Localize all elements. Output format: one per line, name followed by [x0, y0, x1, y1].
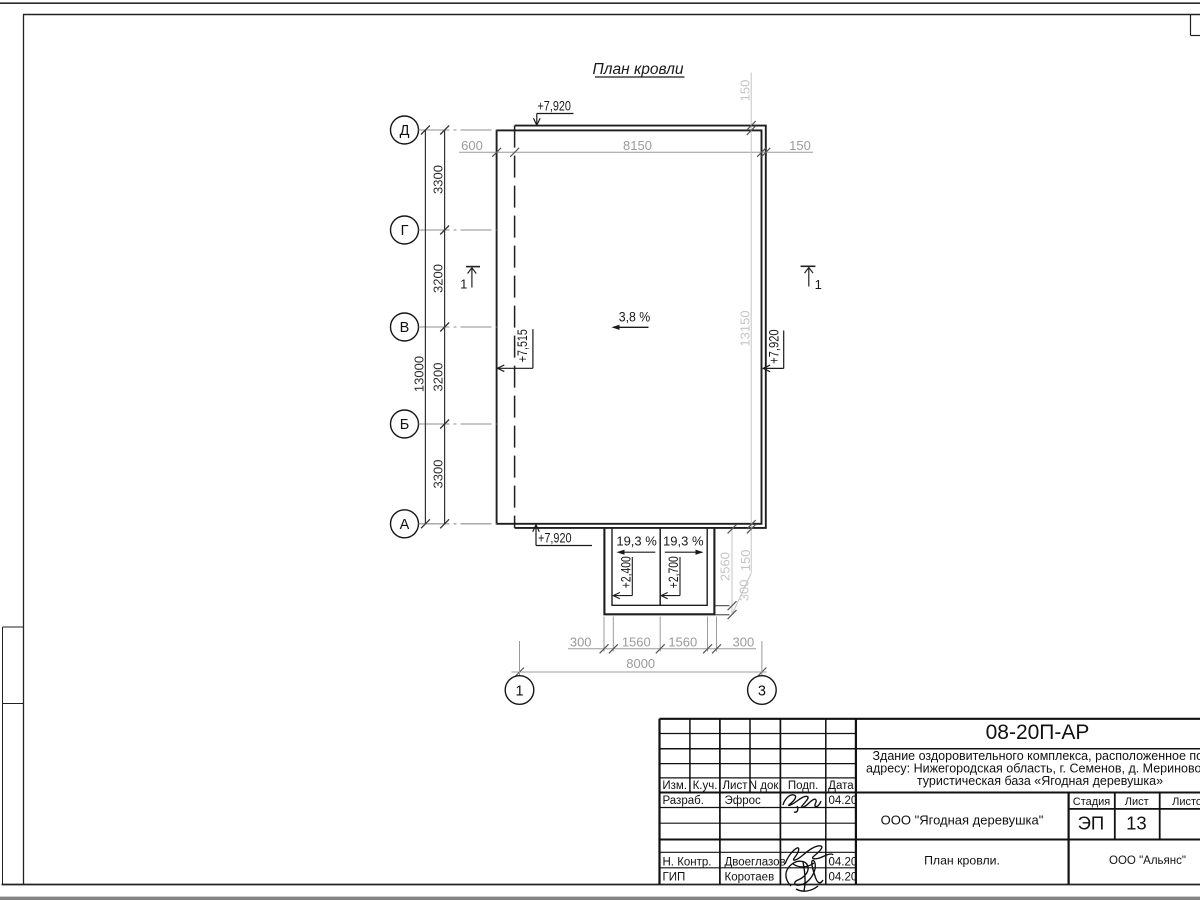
svg-text:300: 300 — [737, 580, 752, 602]
svg-text:Коротаев: Коротаев — [725, 872, 775, 884]
svg-text:3,8 %: 3,8 % — [619, 308, 651, 324]
svg-text:Н. Контр.: Н. Контр. — [663, 857, 712, 869]
svg-text:План кровли: План кровли — [593, 61, 684, 78]
svg-text:3300: 3300 — [430, 165, 445, 194]
svg-text:туристическая база «Ягодная де: туристическая база «Ягодная деревушка» — [917, 774, 1163, 788]
svg-text:04.20: 04.20 — [829, 795, 858, 807]
svg-text:04.20: 04.20 — [829, 872, 858, 884]
svg-text:1: 1 — [515, 683, 523, 699]
svg-text:+2,400: +2,400 — [618, 556, 633, 588]
svg-text:Стадия: Стадия — [1073, 796, 1111, 808]
svg-text:3300: 3300 — [430, 460, 445, 489]
svg-text:3200: 3200 — [430, 363, 445, 392]
svg-text:В: В — [400, 320, 410, 336]
svg-text:Дата: Дата — [828, 780, 854, 792]
svg-text:150: 150 — [738, 80, 753, 102]
svg-text:600: 600 — [461, 138, 483, 153]
svg-text:Эфрос: Эфрос — [725, 795, 762, 807]
svg-text:1: 1 — [815, 277, 822, 292]
svg-text:Листов: Листов — [1172, 796, 1200, 808]
svg-text:3200: 3200 — [430, 264, 445, 293]
svg-text:К.уч.: К.уч. — [693, 780, 718, 792]
svg-text:Изм.: Изм. — [662, 780, 687, 792]
svg-text:ГИП: ГИП — [663, 872, 686, 884]
svg-text:Лист: Лист — [1125, 796, 1149, 808]
svg-text:+7,920: +7,920 — [537, 98, 571, 114]
svg-text:150: 150 — [738, 550, 753, 572]
svg-text:+7,920: +7,920 — [765, 329, 781, 364]
svg-text:3: 3 — [758, 683, 766, 699]
svg-text:1: 1 — [460, 277, 467, 292]
svg-text:300: 300 — [570, 635, 592, 650]
svg-text:Б: Б — [400, 417, 410, 433]
svg-text:1560: 1560 — [622, 635, 651, 650]
svg-text:8000: 8000 — [626, 656, 655, 671]
svg-text:13000: 13000 — [411, 356, 426, 392]
svg-text:Д: Д — [400, 123, 410, 139]
svg-text:+2,700: +2,700 — [666, 556, 681, 588]
svg-text:19,3 %: 19,3 % — [663, 533, 704, 548]
svg-text:N док.: N док. — [749, 780, 782, 792]
svg-text:04.20: 04.20 — [829, 857, 858, 869]
svg-text:300: 300 — [733, 635, 755, 650]
svg-text:150: 150 — [789, 138, 811, 153]
svg-text:19,3 %: 19,3 % — [616, 533, 657, 548]
svg-text:08-20П-АР: 08-20П-АР — [986, 721, 1090, 744]
svg-text:Двоеглазов: Двоеглазов — [725, 857, 786, 869]
svg-text:1560: 1560 — [668, 635, 697, 650]
svg-text:Подп.: Подп. — [788, 780, 819, 792]
svg-text:ООО "Ягодная деревушка": ООО "Ягодная деревушка" — [881, 813, 1044, 828]
svg-text:2560: 2560 — [718, 552, 733, 581]
svg-text:+7,920: +7,920 — [538, 530, 572, 546]
svg-text:+7,515: +7,515 — [514, 329, 530, 362]
svg-text:ООО "Альянс": ООО "Альянс" — [1109, 855, 1186, 867]
svg-text:Г: Г — [401, 223, 409, 239]
svg-text:8150: 8150 — [623, 138, 652, 153]
svg-text:Лист: Лист — [723, 780, 749, 792]
svg-text:А: А — [400, 517, 410, 533]
svg-text:13: 13 — [1126, 813, 1147, 834]
svg-text:ЭП: ЭП — [1078, 813, 1105, 834]
svg-text:13150: 13150 — [738, 310, 753, 346]
svg-text:Разраб.: Разраб. — [663, 795, 704, 807]
svg-text:План кровли.: План кровли. — [924, 854, 1000, 868]
